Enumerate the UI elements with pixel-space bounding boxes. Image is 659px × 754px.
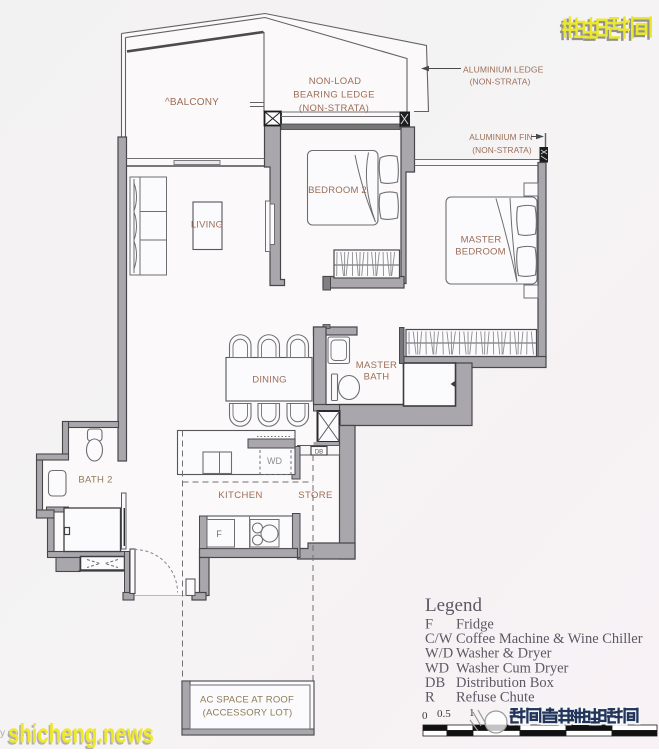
svg-text:STORE: STORE [298,490,333,501]
svg-text:KITCHEN: KITCHEN [218,490,263,501]
svg-text:(NON-STRATA): (NON-STRATA) [472,145,532,155]
svg-text:DB: DB [315,450,323,456]
svg-text:DINING: DINING [252,375,286,386]
svg-text:LIVING: LIVING [191,220,223,231]
svg-text:F: F [425,617,433,633]
svg-text:F: F [216,529,222,539]
svg-text:0.5: 0.5 [437,708,451,720]
svg-text:BATH: BATH [364,372,390,383]
svg-text:Fridge: Fridge [456,617,494,633]
svg-text:W/D: W/D [425,646,453,662]
svg-text:(ACCESSORY LOT): (ACCESSORY LOT) [203,708,293,719]
svg-text:R: R [425,690,435,706]
svg-text:WD: WD [425,660,449,676]
svg-text:AC SPACE AT ROOF: AC SPACE AT ROOF [200,695,294,706]
svg-text:NON-LOAD: NON-LOAD [309,76,362,87]
svg-text:C/W: C/W [425,631,453,647]
svg-text:BATH 2: BATH 2 [78,475,112,486]
svg-text:Coffee Machine & Wine Chiller: Coffee Machine & Wine Chiller [456,631,643,647]
svg-text:Washer Cum Dryer: Washer Cum Dryer [456,660,569,676]
svg-text:MASTER: MASTER [356,360,397,371]
svg-text:BEARING LEDGE: BEARING LEDGE [293,90,375,101]
svg-text:WD: WD [267,456,282,466]
svg-text:ALUMINIUM FIN: ALUMINIUM FIN [469,132,533,142]
svg-text:(NON-STRATA): (NON-STRATA) [299,103,369,114]
svg-text:Washer & Dryer: Washer & Dryer [456,646,552,662]
svg-text:0: 0 [422,710,428,722]
svg-text:^BALCONY: ^BALCONY [165,97,219,108]
svg-text:MASTER: MASTER [461,235,502,246]
svg-text:Distribution Box: Distribution Box [456,675,555,691]
svg-text:Refuse Chute: Refuse Chute [456,690,535,706]
svg-text:DB: DB [425,675,445,691]
svg-text:(NON-STRATA): (NON-STRATA) [470,77,531,87]
svg-text:ALUMINIUM LEDGE: ALUMINIUM LEDGE [463,65,544,75]
svg-text:shicheng.news: shicheng.news [8,719,154,749]
svg-text:Legend: Legend [425,595,482,616]
svg-text:BEDROOM 2: BEDROOM 2 [308,185,367,196]
svg-text:BEDROOM: BEDROOM [455,247,506,258]
